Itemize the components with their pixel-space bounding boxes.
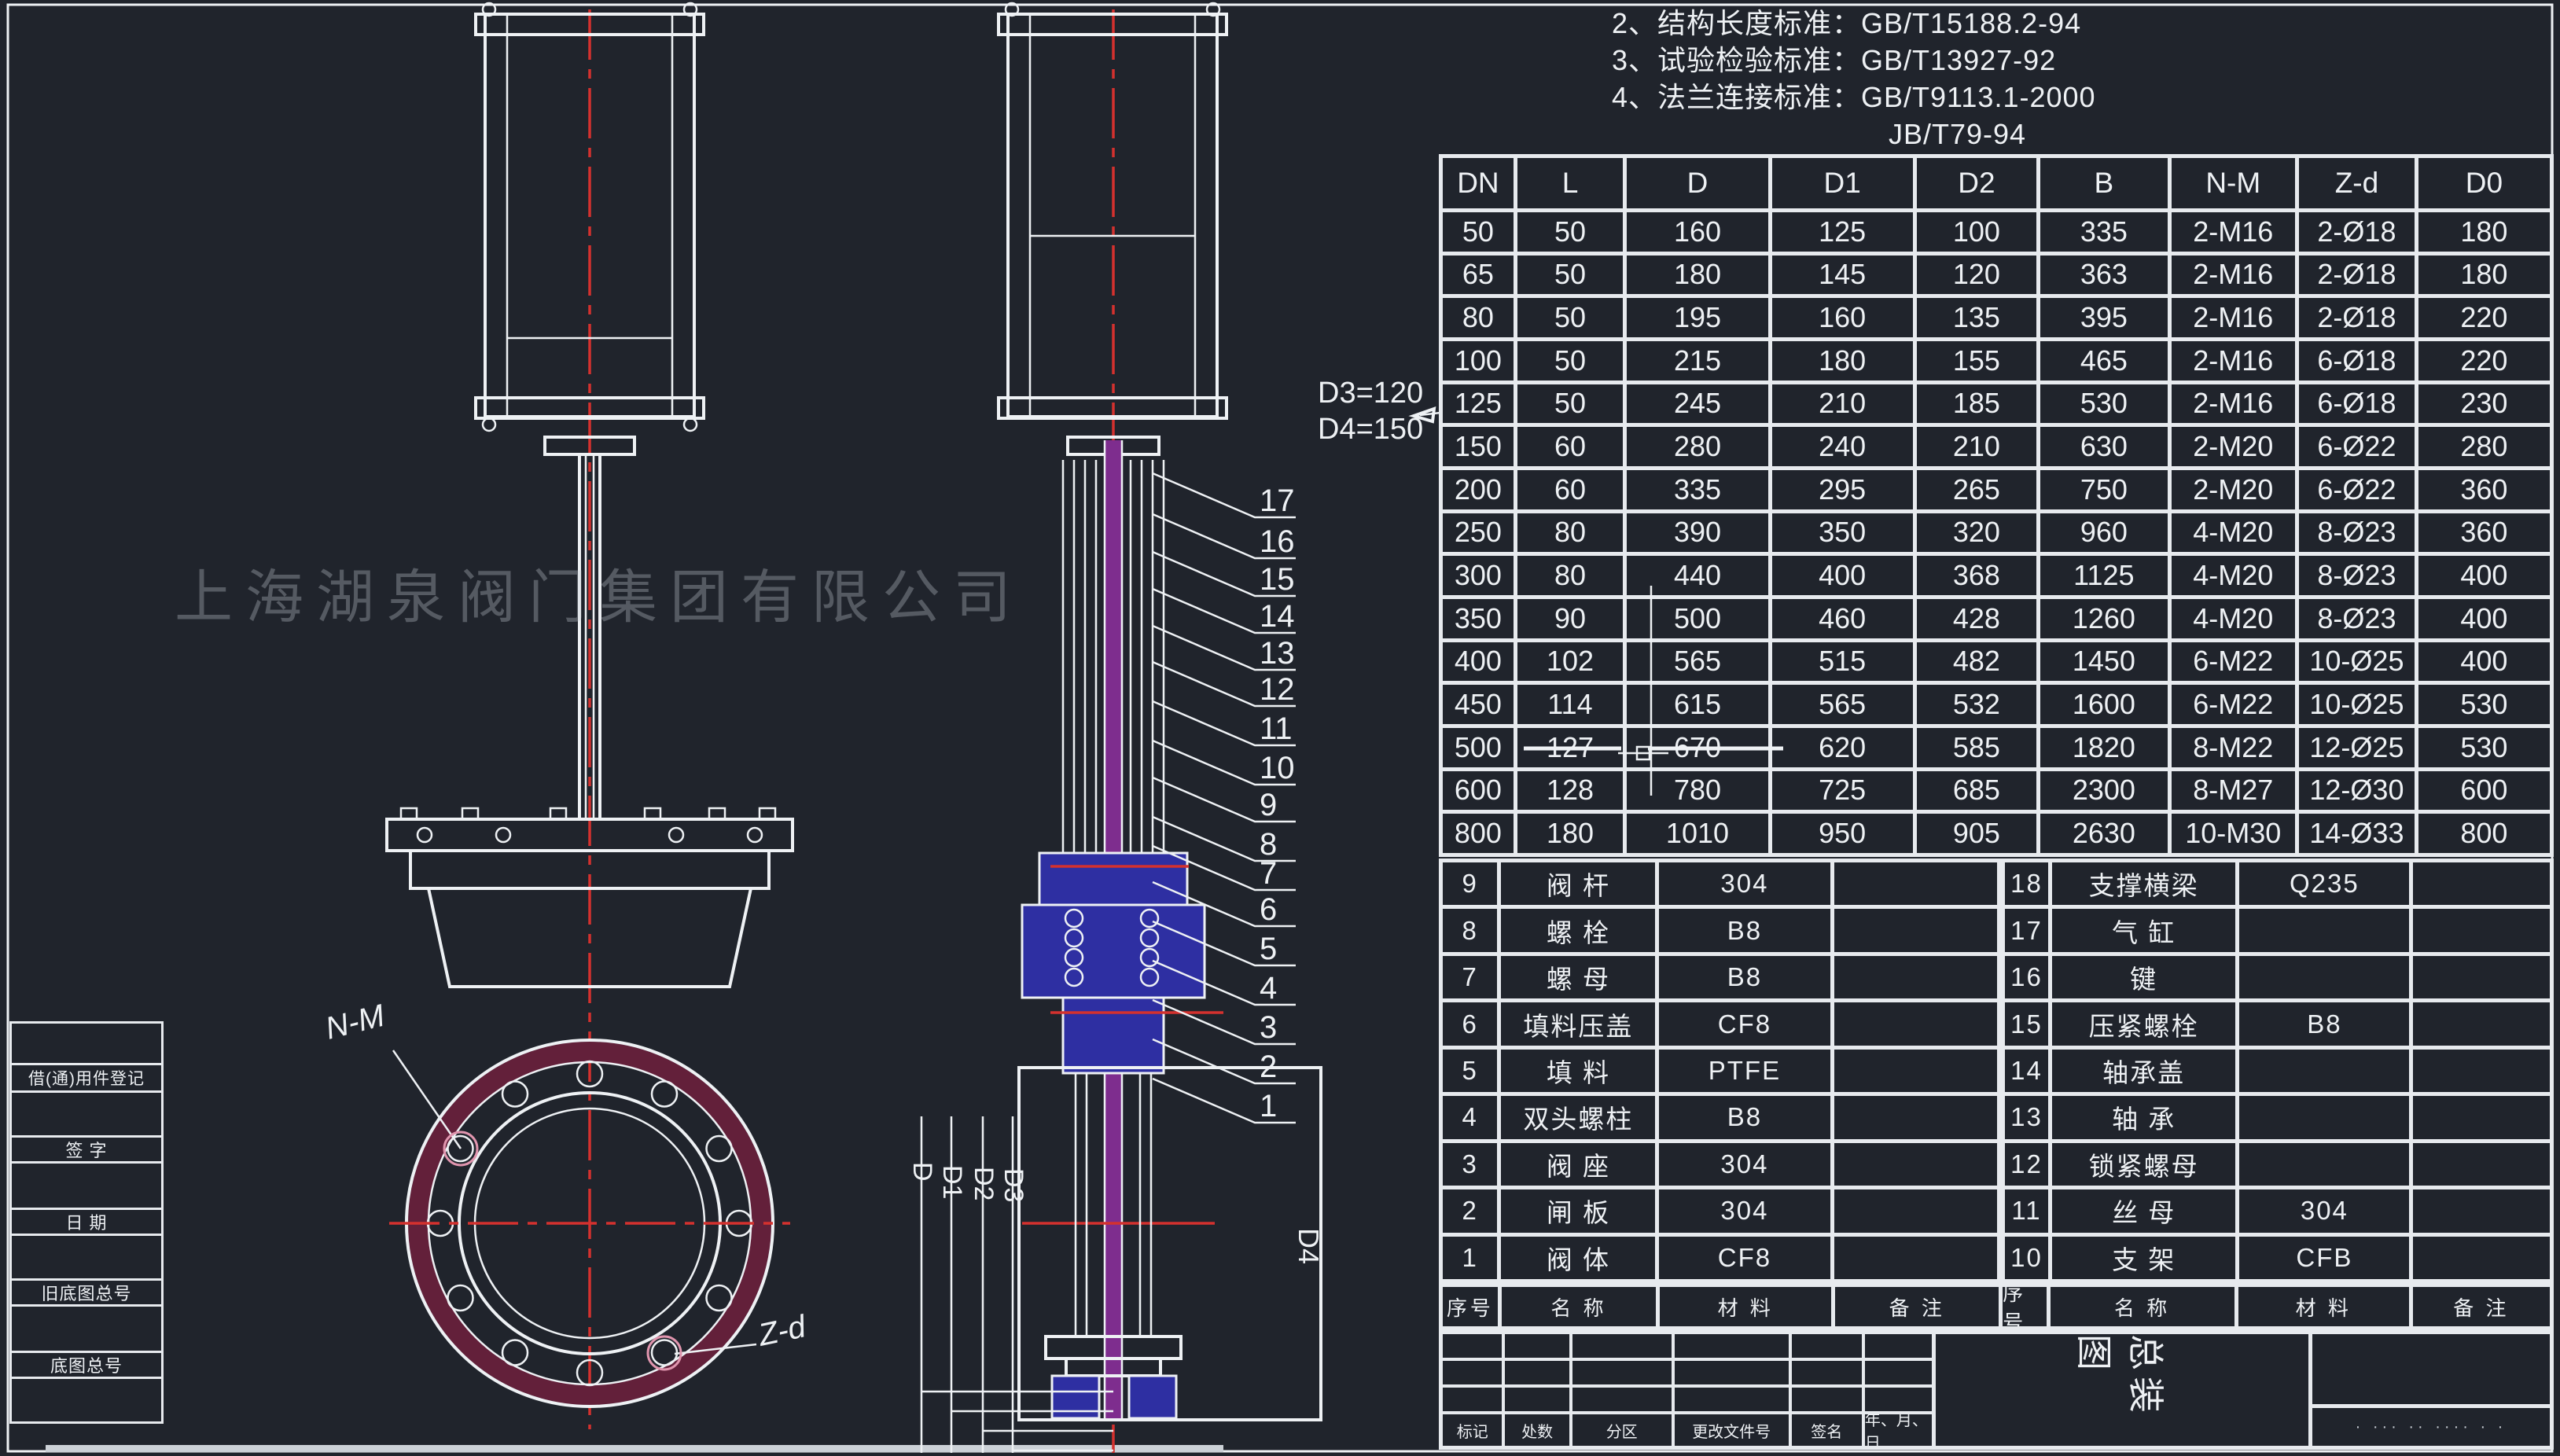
cad-cursor-overlay xyxy=(0,0,2560,1456)
cad-drawing-sheet[interactable]: N-M Z-d xyxy=(0,0,2560,1456)
